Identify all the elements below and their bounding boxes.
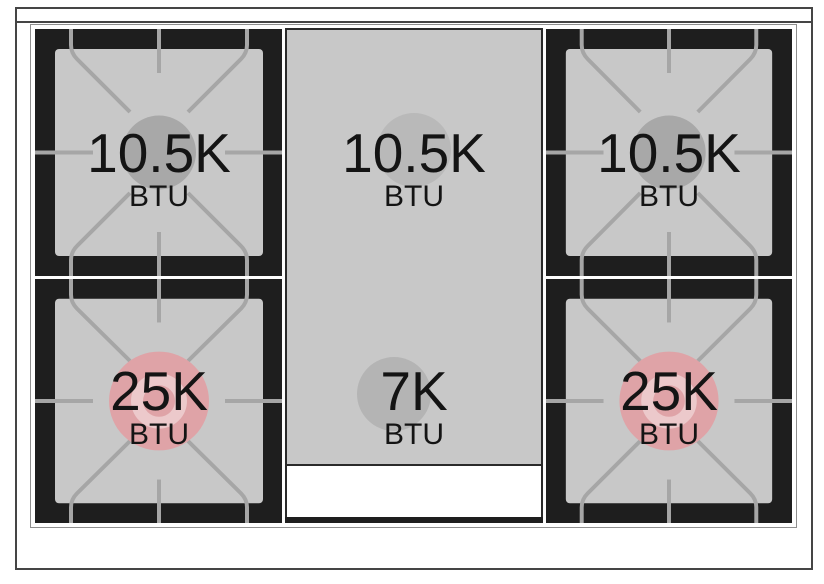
grate-seam-row-left xyxy=(35,276,283,279)
griddle-burner-circle-top xyxy=(377,113,451,187)
grate-seam-right xyxy=(543,26,546,523)
grate-seam-left xyxy=(282,26,285,523)
burner-grate-top-left xyxy=(35,29,283,276)
cooktop-diagram: 10.5K BTU 10.5K BTU 10.5K BTU 25K BTU 7K… xyxy=(0,0,824,584)
griddle-front-strip xyxy=(285,466,543,517)
burner-grate-top-right xyxy=(546,29,792,276)
burner-grate-bottom-left xyxy=(35,279,283,523)
grate-seam-row-right xyxy=(546,276,792,279)
back-rail-line xyxy=(15,21,813,23)
burner-grate-bottom-right xyxy=(546,279,792,523)
griddle-burner-circle-bottom xyxy=(357,357,431,431)
